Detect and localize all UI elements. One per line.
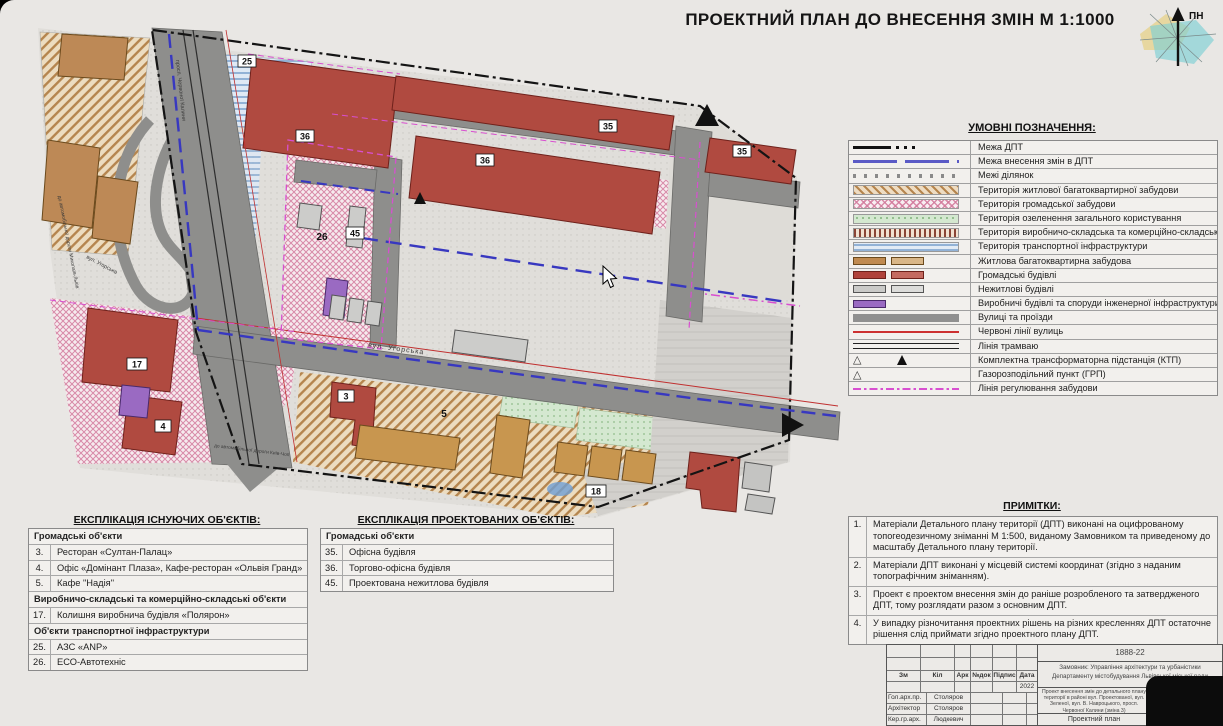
table-row: Об'єкти транспортної інфраструктури <box>29 623 307 639</box>
legend-label: Нежитлові будівлі <box>971 283 1217 296</box>
label-4: 4 <box>160 422 165 432</box>
legend-label: Територія озеленення загального користув… <box>971 212 1217 225</box>
explication-existing-title: ЕКСПЛІКАЦІЯ ІСНУЮЧИХ ОБ'ЄКТІВ: <box>28 514 306 526</box>
legend-label: Виробничі будівлі та споруди інженерної … <box>971 297 1217 310</box>
north-arrow: ПН <box>1136 4 1220 72</box>
section-header: Об'єкти транспортної інфраструктури <box>29 624 307 639</box>
table-row: 17.Колишня виробнича будівля «Полярон» <box>29 607 307 623</box>
legend-label: Комплектна трансформаторна підстанція (К… <box>971 354 1217 367</box>
building-36-a <box>243 58 398 168</box>
title-block-signatures: Зм Кіл Арк №док Підпис Дата 2022 Гол.арх… <box>887 645 1038 725</box>
project-description: Проект внесення змін до детального плану… <box>1038 688 1150 714</box>
corner-overlay <box>1146 676 1223 726</box>
table-row: 45.Проектована нежитлова будівля <box>321 575 613 591</box>
table-row: 4.Офіс «Домінант Плаза», Кафе-ресторан «… <box>29 560 307 576</box>
legend-swatch-public-territory <box>849 198 971 211</box>
triangle-outline-icon <box>853 370 861 380</box>
building-gray-7 <box>742 462 772 492</box>
legend-swatch-streets <box>849 311 971 324</box>
building-tan-r1 <box>554 442 588 476</box>
section-header: Громадські об'єкти <box>321 529 613 544</box>
label-3: 3 <box>343 392 348 402</box>
notes-title: ПРИМІТКИ: <box>848 500 1216 512</box>
drawing-sheet: 25 35 35 36 36 45 26 3 17 4 5 18 вул. Уг… <box>0 0 1223 726</box>
legend-label: Громадські будівлі <box>971 269 1217 282</box>
label-17: 17 <box>132 360 142 370</box>
building-gray-8 <box>745 494 775 514</box>
legend-label: Лінія регулювання забудови <box>971 382 1217 395</box>
legend-label: Лінія трамваю <box>971 340 1217 353</box>
stamp-date: 2022 <box>1017 682 1037 692</box>
legend-label: Територія громадської забудови <box>971 198 1217 211</box>
north-label: ПН <box>1189 11 1203 22</box>
legend-swatch-public-buildings <box>849 269 971 282</box>
table-row: 25.АЗС «ANP» <box>29 639 307 655</box>
note-row: 1.Матеріали Детального плану території (… <box>849 517 1217 557</box>
table-row: 5.Кафе "Надія" <box>29 575 307 591</box>
legend-label: Червоні лінії вулиць <box>971 325 1217 338</box>
legend-swatch-nonresidential-buildings <box>849 283 971 296</box>
table-row: 3.Ресторан «Султан-Палац» <box>29 544 307 560</box>
label-36a: 36 <box>300 132 310 142</box>
legend-swatch-residential-buildings <box>849 255 971 268</box>
triangle-outline-icon <box>853 355 861 365</box>
section-header: Виробничо-складські та комерційно-складс… <box>29 592 307 607</box>
label-26: 26 <box>316 232 328 243</box>
legend-swatch-regulation-line <box>849 382 971 395</box>
note-row: 4.У випадку різночитання проектних рішен… <box>849 615 1217 644</box>
building-gray-3 <box>329 295 346 320</box>
legend-swatch-residential-territory <box>849 184 971 197</box>
building-tan-r2 <box>588 446 622 480</box>
legend-label: Територія виробничо-складська та комерці… <box>971 226 1217 239</box>
notes-panel: 1.Матеріали Детального плану території (… <box>848 516 1218 645</box>
legend-title: УМОВНІ ПОЗНАЧЕННЯ: <box>848 122 1216 134</box>
site-plan-map: 25 35 35 36 36 45 26 3 17 4 5 18 вул. Уг… <box>0 0 850 530</box>
section-header: Громадські об'єкти <box>29 529 307 544</box>
legend-swatch-production-buildings <box>849 297 971 310</box>
legend-label: Територія житлової багатоквартирної забу… <box>971 184 1217 197</box>
label-45: 45 <box>350 229 360 239</box>
table-row: Громадські об'єкти <box>29 529 307 544</box>
building-gray-1 <box>297 203 322 230</box>
building-17 <box>82 308 178 392</box>
legend-label: Межі ділянок <box>971 169 1217 182</box>
table-row: Виробничо-складські та комерційно-складс… <box>29 591 307 607</box>
legend-label: Газорозподільний пункт (ГРП) <box>971 368 1217 381</box>
label-18: 18 <box>591 487 601 497</box>
label-36b: 36 <box>480 156 490 166</box>
legend-label: Межа ДПТ <box>971 141 1217 154</box>
building-gray-4 <box>347 298 364 323</box>
note-row: 2.Матеріали ДПТ виконані у місцевій сист… <box>849 557 1217 586</box>
building-industrial-1 <box>119 385 150 418</box>
legend-label: Територія транспортної інфраструктури <box>971 240 1217 253</box>
legend-swatch-ktp <box>849 354 971 367</box>
parking-symbol <box>547 482 573 496</box>
page-title: ПРОЕКТНИЙ ПЛАН ДО ВНЕСЕННЯ ЗМІН М 1:1000 <box>660 10 1140 30</box>
label-35a: 35 <box>603 122 613 132</box>
legend-label: Вулиці та проїзди <box>971 311 1217 324</box>
legend-swatch-tram-line <box>849 340 971 353</box>
legend-swatch-red-lines <box>849 325 971 338</box>
legend-swatch-change-boundary <box>849 155 971 168</box>
legend-swatch-green-territory <box>849 212 971 225</box>
table-row: 35.Офісна будівля <box>321 544 613 560</box>
building-brown-2 <box>42 140 100 228</box>
building-brown-1 <box>58 34 128 80</box>
legend-swatch-grp <box>849 368 971 381</box>
legend-swatch-dpt-boundary <box>849 141 971 154</box>
building-gray-5 <box>365 301 382 326</box>
label-35b: 35 <box>737 147 747 157</box>
legend-panel: Межа ДПТ Межа внесення змін в ДПТ Межі д… <box>848 140 1218 396</box>
legend-swatch-parcel-boundary <box>849 169 971 182</box>
table-row: 26.ЕСО-Автотехніс <box>29 654 307 670</box>
explication-projected-title: ЕКСПЛІКАЦІЯ ПРОЕКТОВАНИХ ОБ'ЄКТІВ: <box>320 514 612 526</box>
legend-swatch-transport-territory <box>849 240 971 253</box>
legend-swatch-industrial-territory <box>849 226 971 239</box>
legend-label: Житлова багатоквартирна забудова <box>971 255 1217 268</box>
explication-projected-table: Громадські об'єкти 35.Офісна будівля 36.… <box>320 528 614 592</box>
triangle-filled-icon <box>897 355 907 365</box>
building-tan-r3 <box>622 450 656 484</box>
doc-name: Проектний план <box>1038 714 1150 725</box>
label-25: 25 <box>242 57 252 67</box>
table-row: 36.Торгово-офісна будівля <box>321 560 613 576</box>
project-code: 1888-22 <box>1038 645 1222 662</box>
note-row: 3.Проект є проектом внесення змін до ран… <box>849 586 1217 615</box>
table-row: Громадські об'єкти <box>321 529 613 544</box>
building-brown-3 <box>92 176 138 244</box>
label-5: 5 <box>441 409 447 420</box>
explication-existing-table: Громадські об'єкти 3.Ресторан «Султан-Па… <box>28 528 308 671</box>
legend-label: Межа внесення змін в ДПТ <box>971 155 1217 168</box>
